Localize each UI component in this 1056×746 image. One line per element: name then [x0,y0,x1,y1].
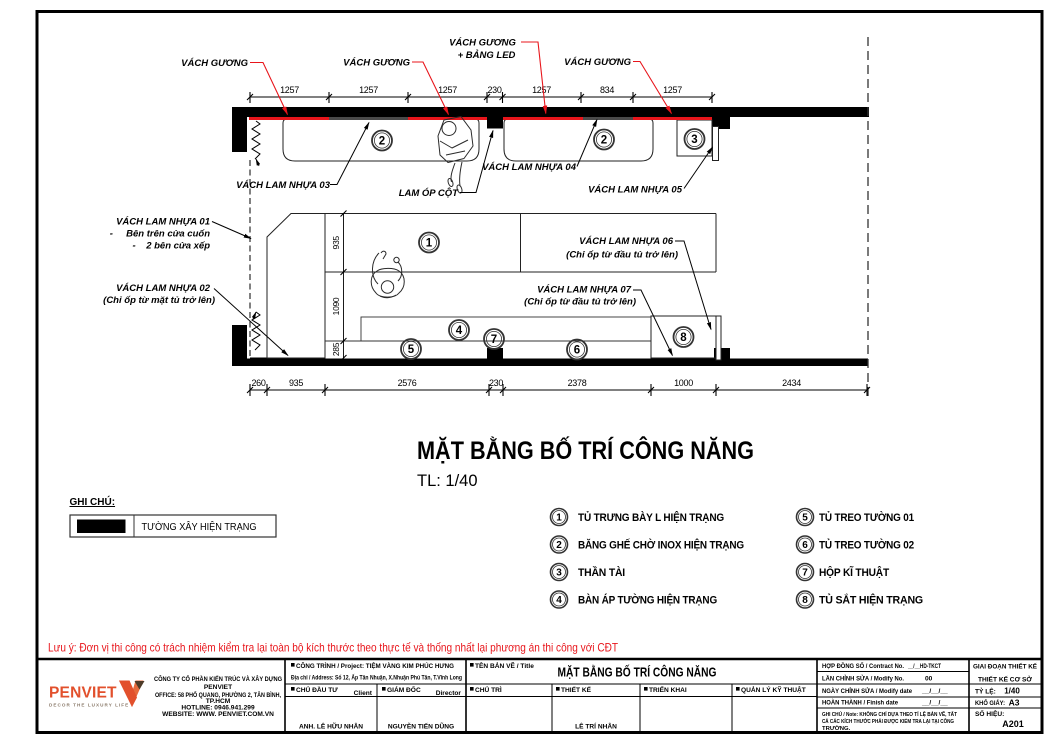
svg-text:WEBSITE: WWW. PENVIET.COM.VN: WEBSITE: WWW. PENVIET.COM.VN [162,711,274,718]
svg-text:834: 834 [600,85,614,95]
svg-text:1257: 1257 [359,85,378,95]
svg-text:VÁCH LAM NHỰA 04: VÁCH LAM NHỰA 04 [482,162,577,173]
svg-text:4: 4 [456,325,463,337]
svg-text:2576: 2576 [398,378,417,388]
svg-text:5: 5 [802,513,808,524]
svg-text:NGUYỄN TIẾN DŨNG: NGUYỄN TIẾN DŨNG [388,721,454,731]
svg-text:Client: Client [354,690,373,697]
svg-text:TỦ TRƯNG BÀY L HIỆN TRẠNG: TỦ TRƯNG BÀY L HIỆN TRẠNG [578,511,724,524]
svg-text:TRƯỜNG.: TRƯỜNG. [822,724,851,732]
svg-text:__/__/__: __/__/__ [921,688,948,695]
svg-text:2378: 2378 [568,378,587,388]
svg-text:+ BẢNG LED: + BẢNG LED [458,49,516,61]
svg-text:1257: 1257 [532,85,551,95]
svg-text:GHI CHÚ / Note: KHÔNG CHỈ DỰA: GHI CHÚ / Note: KHÔNG CHỈ DỰA THEO TỈ LỆ… [822,710,957,718]
svg-text:5: 5 [408,344,415,356]
svg-text:BÀN ÁP TƯỜNG HIỆN TRẠNG: BÀN ÁP TƯỜNG HIỆN TRẠNG [578,594,717,607]
svg-text:4: 4 [556,595,562,606]
svg-text:1000: 1000 [674,378,693,388]
svg-text:1/40: 1/40 [1004,687,1020,696]
svg-text:TL: 1/40: TL: 1/40 [417,472,478,490]
svg-text:VÁCH GƯƠNG: VÁCH GƯƠNG [449,38,516,49]
svg-text:6: 6 [802,540,808,551]
svg-text:1: 1 [556,513,562,524]
svg-text:285: 285 [331,342,341,356]
svg-text:VÁCH LAM NHỰA 02: VÁCH LAM NHỰA 02 [116,283,211,294]
svg-text:MẶT BẰNG BỐ TRÍ CÔNG NĂNG: MẶT BẰNG BỐ TRÍ CÔNG NĂNG [417,435,754,465]
svg-text:1257: 1257 [663,85,682,95]
svg-text:2: 2 [601,135,607,147]
svg-text:VÁCH GƯƠNG: VÁCH GƯƠNG [343,58,410,69]
svg-text:230: 230 [489,378,503,388]
svg-text:2: 2 [556,540,562,551]
svg-text:THIẾT KẾ CƠ SỞ: THIẾT KẾ CƠ SỞ [978,674,1032,684]
svg-text:(Chỉ ốp từ đầu tủ trở lên): (Chỉ ốp từ đầu tủ trở lên) [566,250,678,261]
svg-text:1257: 1257 [438,85,457,95]
svg-text:GIAI ĐOẠN THIẾT KẾ: GIAI ĐOẠN THIẾT KẾ [973,661,1038,671]
svg-text:260: 260 [251,378,265,388]
svg-text:BĂNG GHẾ CHỜ INOX HIỆN TRẠNG: BĂNG GHẾ CHỜ INOX HIỆN TRẠNG [578,539,744,552]
svg-text:8: 8 [802,595,808,606]
svg-text:GHI CHÚ:: GHI CHÚ: [70,495,116,508]
svg-text:TƯỜNG XÂY HIỆN TRẠNG: TƯỜNG XÂY HIỆN TRẠNG [142,520,257,533]
svg-text:TỶ LỆ:: TỶ LỆ: [975,687,996,696]
svg-text:1257: 1257 [280,85,299,95]
svg-text:3: 3 [691,134,697,146]
svg-text:Director: Director [436,690,462,697]
svg-text:1090: 1090 [331,297,341,315]
svg-text:2434: 2434 [782,378,801,388]
svg-text:7: 7 [491,334,497,346]
svg-text:CẢ CÁC KÍCH THƯỚC PHẢI ĐƯỢC KI: CẢ CÁC KÍCH THƯỚC PHẢI ĐƯỢC KIỂM TRA LẠI… [822,717,954,725]
svg-text:- Bên trên cửa cuốn: - Bên trên cửa cuốn [110,229,210,240]
svg-text:HỢP ĐỒNG SỐ / Contract No.: HỢP ĐỒNG SỐ / Contract No. [822,660,904,670]
svg-text:__/__/__: __/__/__ [921,700,948,707]
svg-text:HỘP KĨ THUẬT: HỘP KĨ THUẬT [819,566,889,579]
svg-text:ANH. LÊ HỮU NHÂN: ANH. LÊ HỮU NHÂN [299,722,363,731]
svg-text:8: 8 [680,332,687,344]
svg-text:CHỦ ĐẦU TƯ: CHỦ ĐẦU TƯ [296,684,338,694]
svg-text:__/__HD-TKCT: __/__HD-TKCT [907,663,941,670]
svg-text:CÔNG TY CỔ PHẦN KIẾN TRÚC VÀ X: CÔNG TY CỔ PHẦN KIẾN TRÚC VÀ XÂY DỰNG [154,673,282,683]
svg-text:(Chỉ ốp từ mặt tủ trở lên): (Chỉ ốp từ mặt tủ trở lên) [103,295,215,306]
svg-text:QUẢN LÝ KỸ THUẬT: QUẢN LÝ KỸ THUẬT [741,685,806,694]
svg-text:VÁCH GƯƠNG: VÁCH GƯƠNG [564,57,631,68]
svg-text:TÊN BẢN VẼ / Title: TÊN BẢN VẼ / Title [475,661,534,670]
svg-text:A3: A3 [1009,698,1020,708]
svg-text:Lưu ý: Đơn vị thi công có trác: Lưu ý: Đơn vị thi công có trách nhiệm ki… [48,641,619,655]
svg-text:VÁCH LAM NHỰA 03: VÁCH LAM NHỰA 03 [236,180,331,191]
svg-text:A201: A201 [1002,719,1024,729]
svg-text:7: 7 [802,568,808,579]
svg-text:MẶT BẰNG BỐ TRÍ CÔNG NĂNG: MẶT BẰNG BỐ TRÍ CÔNG NĂNG [558,665,717,680]
svg-text:3: 3 [556,568,562,579]
svg-text:THIẾT KẾ: THIẾT KẾ [561,684,592,694]
svg-text:2: 2 [379,136,385,148]
svg-text:LẦN CHỈNH SỬA / Modify No.: LẦN CHỈNH SỬA / Modify No. [822,673,904,683]
svg-text:SỐ HIỆU:: SỐ HIỆU: [975,708,1004,718]
svg-text:- 2 bên cửa xếp: - 2 bên cửa xếp [132,241,210,252]
svg-text:KHỔ GIẤY:: KHỔ GIẤY: [975,697,1005,707]
svg-text:1: 1 [426,238,433,250]
svg-text:VÁCH LAM NHỰA 06: VÁCH LAM NHỰA 06 [579,236,674,247]
svg-text:GIÁM ĐỐC: GIÁM ĐỐC [387,684,421,694]
svg-text:LÊ TRÍ NHÂN: LÊ TRÍ NHÂN [575,722,617,731]
svg-text:TỦ SẮT HIỆN TRẠNG: TỦ SẮT HIỆN TRẠNG [819,594,923,607]
svg-text:DECOR THE LUXURY LIFE: DECOR THE LUXURY LIFE [49,703,129,708]
svg-text:PENVIET: PENVIET [204,684,232,691]
svg-text:CHỦ TRÌ: CHỦ TRÌ [475,685,502,694]
svg-text:NGÀY CHỈNH SỬA / Modify date: NGÀY CHỈNH SỬA / Modify date [822,686,912,695]
svg-text:VÁCH LAM NHỰA 01: VÁCH LAM NHỰA 01 [116,217,210,228]
svg-text:00: 00 [925,676,933,683]
svg-text:TRIỂN KHAI: TRIỂN KHAI [649,685,687,694]
svg-text:CÔNG TRÌNH / Project: TIỆM VÀ: CÔNG TRÌNH / Project: TIỆM VÀNG KIM PHÚC… [296,661,454,670]
svg-text:PENVIET: PENVIET [49,685,117,702]
svg-text:TỦ TREO TƯỜNG 01: TỦ TREO TƯỜNG 01 [819,511,914,524]
svg-text:Địa chỉ / Address: Số 12, Ấp T: Địa chỉ / Address: Số 12, Ấp Tân Nhuận, … [291,672,462,682]
svg-text:TỦ TREO TƯỜNG 02: TỦ TREO TƯỜNG 02 [819,539,914,552]
svg-text:935: 935 [331,236,341,250]
svg-text:VÁCH GƯƠNG: VÁCH GƯƠNG [181,58,248,69]
svg-text:LAM ÓP CỘT: LAM ÓP CỘT [399,187,459,199]
svg-text:VÁCH LAM NHỰA 05: VÁCH LAM NHỰA 05 [588,185,683,196]
svg-text:HOÀN THÀNH / Finish date: HOÀN THÀNH / Finish date [822,698,898,707]
svg-text:(Chỉ ốp từ đầu tủ trở lên): (Chỉ ốp từ đầu tủ trở lên) [524,297,636,308]
svg-text:THẦN TÀI: THẦN TÀI [578,566,625,579]
svg-text:VÁCH LAM NHỰA 07: VÁCH LAM NHỰA 07 [537,285,632,296]
svg-text:6: 6 [574,345,580,357]
svg-text:935: 935 [289,378,303,388]
svg-text:230: 230 [487,85,501,95]
